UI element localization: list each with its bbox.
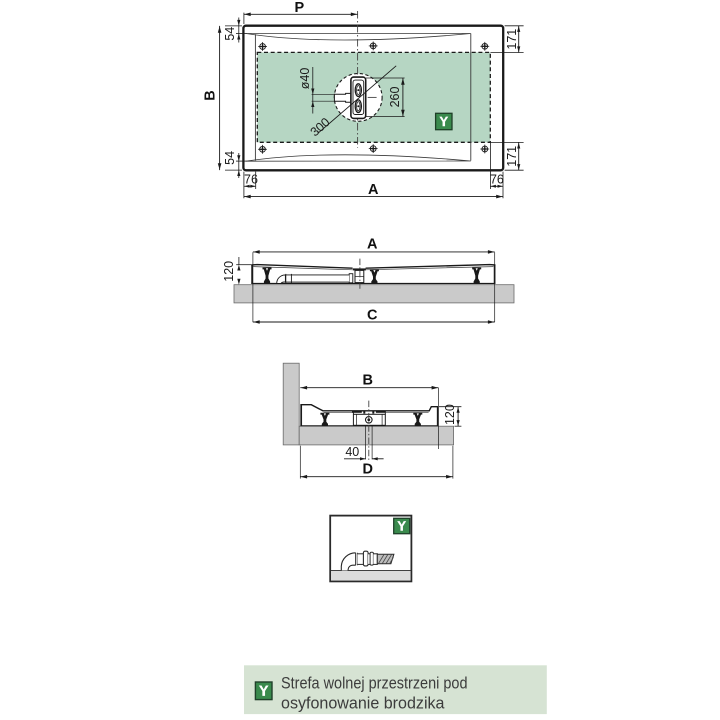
svg-text:P: P [294, 0, 304, 16]
svg-text:B: B [202, 90, 218, 100]
svg-text:54: 54 [223, 151, 237, 165]
svg-text:120: 120 [222, 261, 236, 282]
svg-text:171: 171 [505, 146, 519, 167]
svg-text:D: D [363, 461, 373, 477]
svg-text:A: A [367, 237, 378, 253]
svg-text:Strefa wolnej przestrzeni pod: Strefa wolnej przestrzeni pod [281, 673, 468, 692]
svg-text:osyfonowanie brodzika: osyfonowanie brodzika [281, 693, 445, 712]
svg-text:120: 120 [443, 404, 457, 425]
svg-text:40: 40 [345, 445, 359, 459]
svg-text:76: 76 [490, 173, 504, 187]
svg-text:C: C [367, 308, 378, 324]
svg-text:B: B [363, 372, 373, 388]
svg-text:ø40: ø40 [298, 68, 312, 90]
svg-text:260: 260 [388, 87, 402, 108]
svg-text:A: A [368, 182, 379, 198]
svg-text:54: 54 [223, 27, 237, 41]
svg-text:171: 171 [505, 29, 519, 50]
